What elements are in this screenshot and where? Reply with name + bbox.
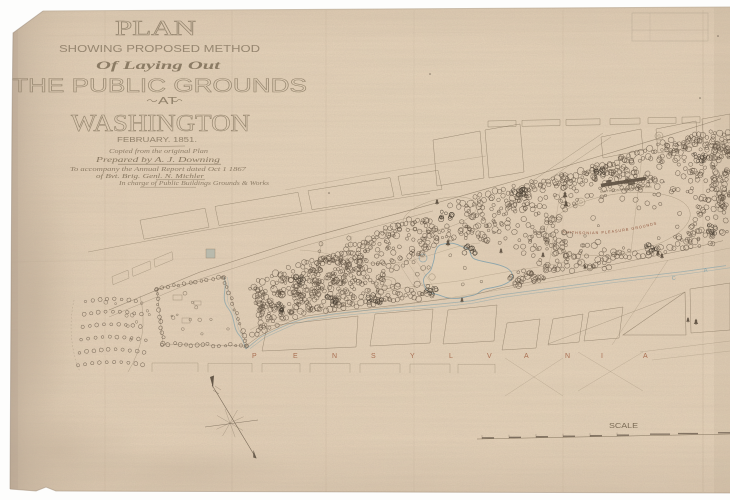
svg-text:of Bvt. Brig. Genl. N. Michler: of Bvt. Brig. Genl. N. Michler (96, 173, 205, 180)
svg-text:P: P (252, 353, 257, 360)
svg-text:THE PUBLIC GROUNDS: THE PUBLIC GROUNDS (12, 75, 307, 97)
svg-text:FEBRUARY. 1851.: FEBRUARY. 1851. (117, 137, 197, 144)
svg-text:A: A (524, 353, 529, 360)
svg-text:WASHINGTON: WASHINGTON (71, 111, 250, 137)
svg-text:Y: Y (410, 353, 415, 360)
svg-text:A: A (643, 353, 648, 360)
svg-text:PLAN: PLAN (115, 16, 196, 40)
svg-text:In charge of Public Buildings: In charge of Public Buildings Grounds & … (118, 180, 270, 187)
svg-text:Of Laying Out: Of Laying Out (96, 58, 221, 72)
svg-text:Copied from the original Plan: Copied from the original Plan (109, 148, 208, 155)
svg-text:I: I (601, 353, 603, 360)
svg-text:N: N (565, 353, 570, 360)
svg-text:SCALE: SCALE (609, 423, 638, 430)
svg-text:N: N (332, 353, 337, 360)
svg-text:V: V (487, 353, 492, 360)
svg-text:SHOWING PROPOSED METHOD: SHOWING PROPOSED METHOD (59, 44, 260, 55)
svg-text:L: L (449, 353, 453, 360)
svg-text:E: E (293, 353, 298, 360)
svg-text:C: C (671, 275, 676, 281)
svg-text:Prepared by A. J. Downing: Prepared by A. J. Downing (95, 155, 221, 164)
svg-text:S: S (371, 353, 376, 360)
